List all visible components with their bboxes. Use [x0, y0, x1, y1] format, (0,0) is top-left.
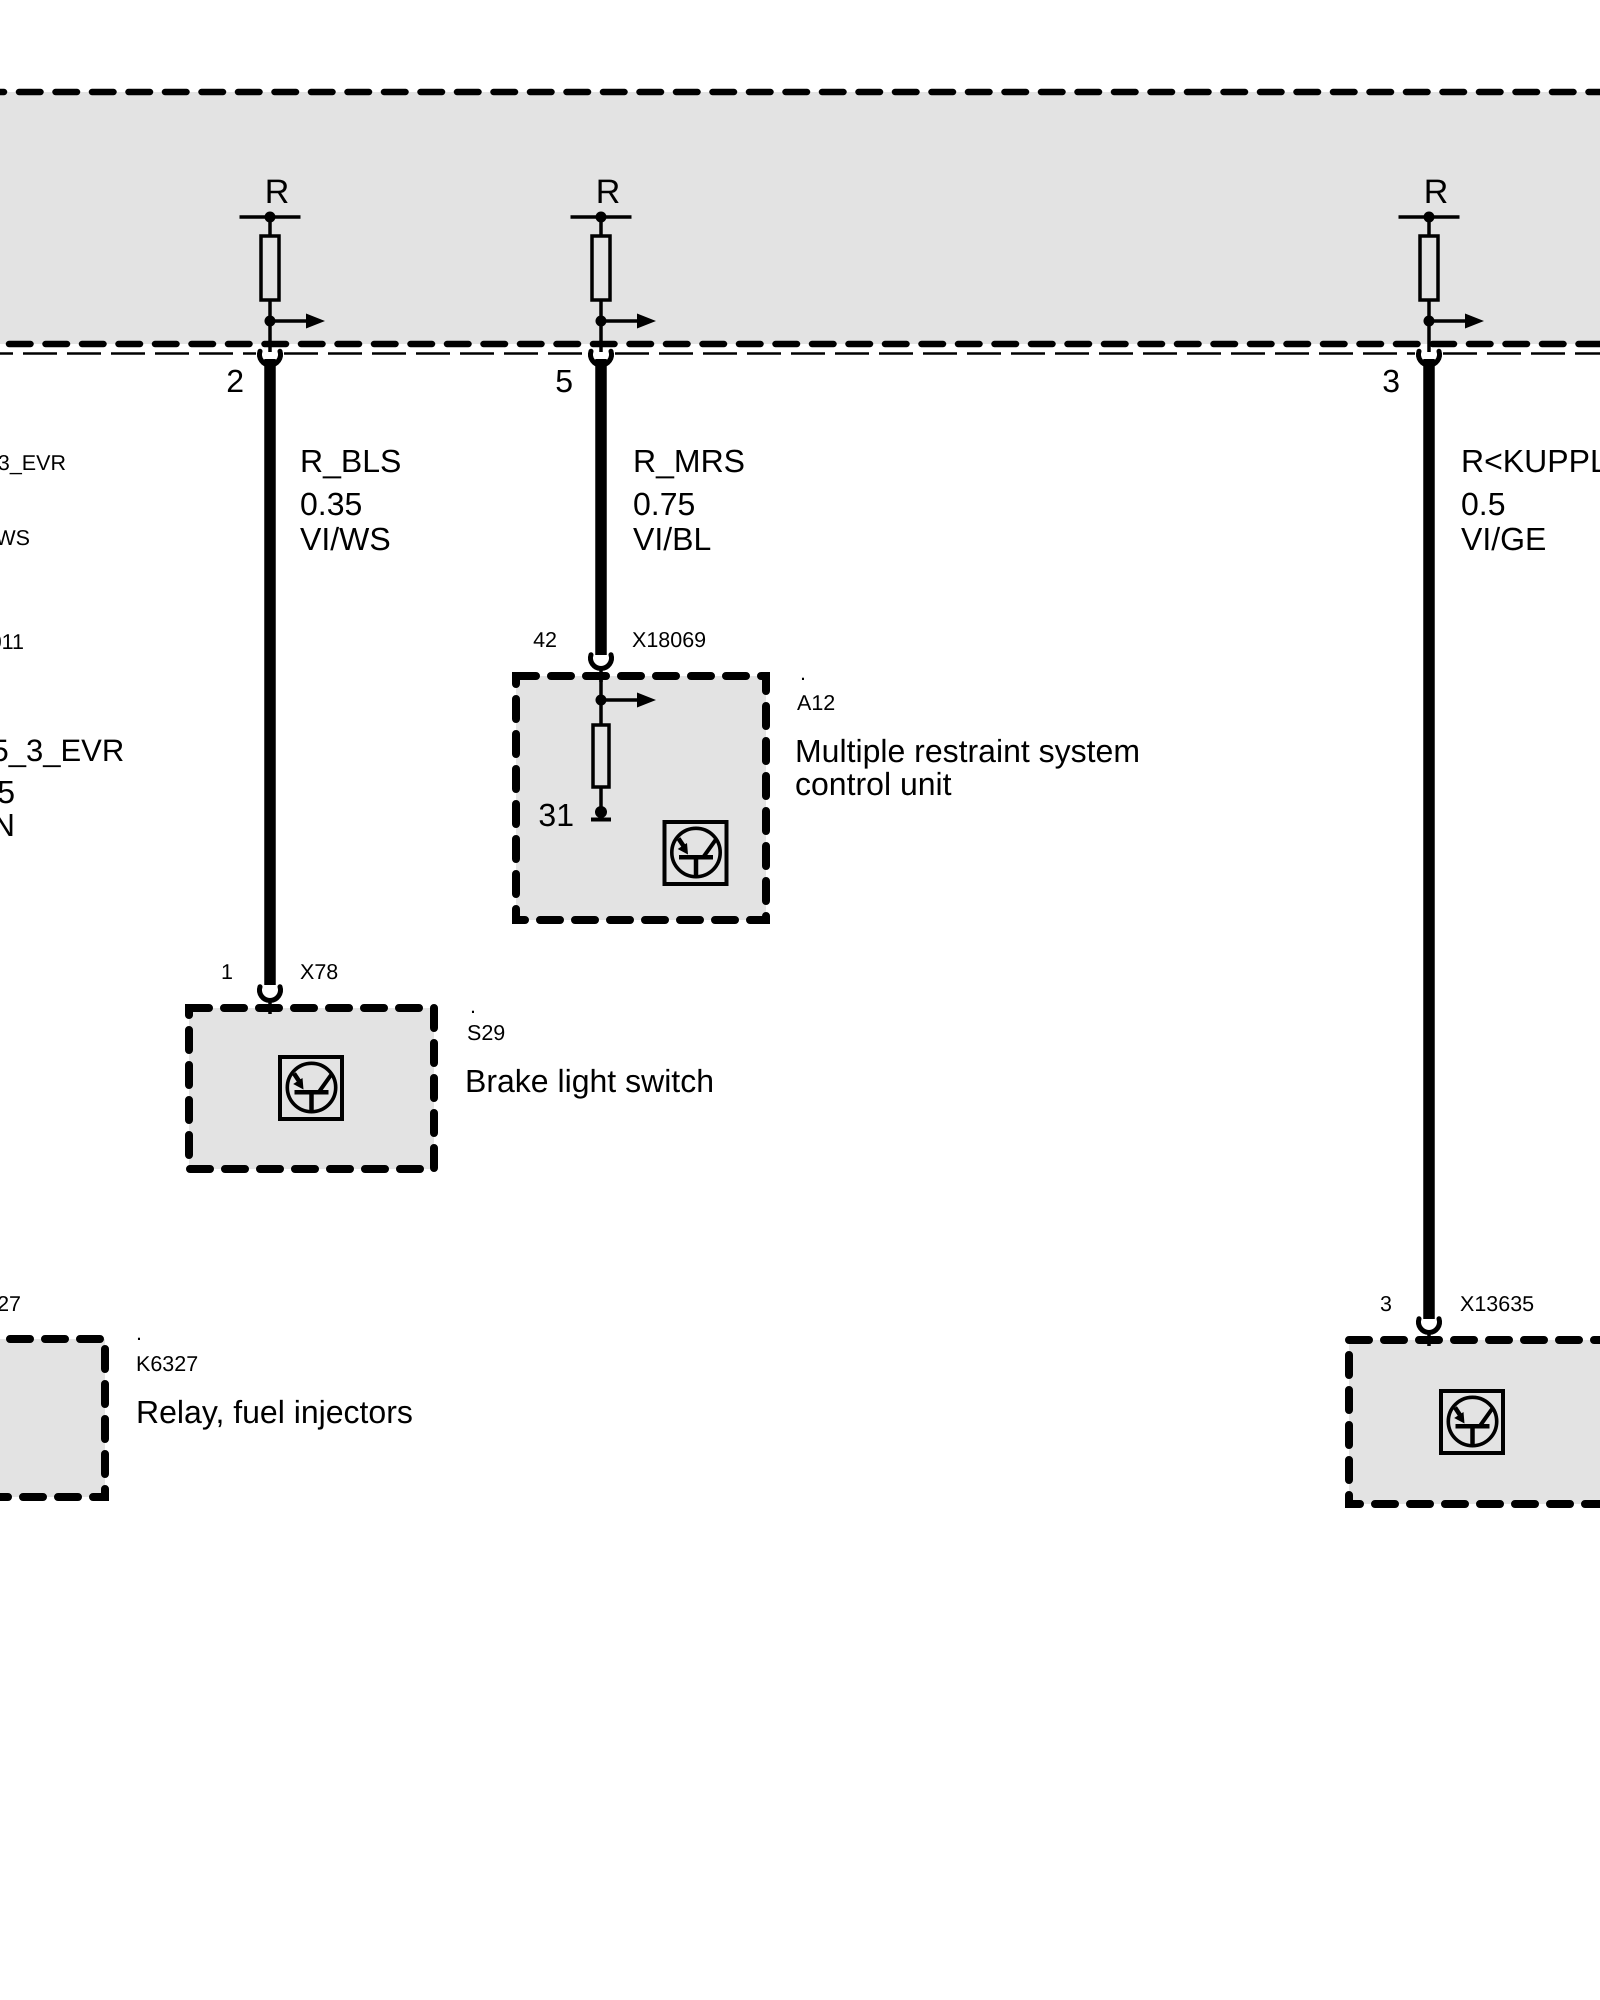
svg-text:R: R — [596, 173, 621, 211]
svg-text:.: . — [136, 1321, 142, 1345]
svg-text:5_3_EVR: 5_3_EVR — [0, 733, 124, 768]
svg-text:.: . — [800, 661, 806, 685]
svg-text:X18069: X18069 — [632, 628, 706, 652]
svg-text:X6327: X6327 — [0, 1292, 21, 1316]
svg-text:3: 3 — [1380, 1292, 1392, 1316]
svg-text:S29: S29 — [467, 1021, 505, 1045]
svg-text:VI/BL: VI/BL — [633, 521, 711, 557]
svg-text:X6011: X6011 — [0, 630, 24, 654]
svg-text:2: 2 — [226, 363, 244, 399]
svg-text:Relay, fuel injectors: Relay, fuel injectors — [136, 1394, 413, 1430]
svg-text:5: 5 — [555, 363, 573, 399]
svg-text:X78: X78 — [300, 960, 338, 984]
svg-text:Multiple restraint system: Multiple restraint system — [795, 733, 1140, 769]
svg-text:31: 31 — [538, 797, 574, 833]
svg-text:VI/WS: VI/WS — [300, 521, 391, 557]
svg-text:1: 1 — [221, 960, 233, 984]
svg-text:BN: BN — [0, 807, 15, 843]
svg-text:0.35: 0.35 — [300, 486, 362, 522]
svg-text:A12: A12 — [797, 691, 835, 715]
svg-text:0.75: 0.75 — [633, 486, 695, 522]
svg-text:R: R — [265, 173, 290, 211]
svg-text:R<KUPPLUNG: R<KUPPLUNG — [1461, 443, 1600, 479]
svg-text:control unit: control unit — [795, 766, 952, 802]
svg-text:3: 3 — [1382, 363, 1400, 399]
svg-text:_3_EVR: _3_EVR — [0, 451, 66, 475]
svg-text:42: 42 — [533, 628, 557, 652]
svg-text:0.35: 0.35 — [0, 774, 15, 810]
svg-text:0.5: 0.5 — [1461, 486, 1505, 522]
svg-text:K6327: K6327 — [136, 1352, 198, 1376]
svg-text:Brake light switch: Brake light switch — [465, 1063, 714, 1099]
svg-text:VI/WS: VI/WS — [0, 526, 30, 550]
svg-text:R_MRS: R_MRS — [633, 443, 745, 479]
svg-text:R_BLS: R_BLS — [300, 443, 401, 479]
svg-text:VI/GE: VI/GE — [1461, 521, 1546, 557]
svg-text:.: . — [470, 994, 476, 1018]
svg-text:X13635: X13635 — [1460, 1292, 1534, 1316]
svg-text:R: R — [1424, 173, 1449, 211]
